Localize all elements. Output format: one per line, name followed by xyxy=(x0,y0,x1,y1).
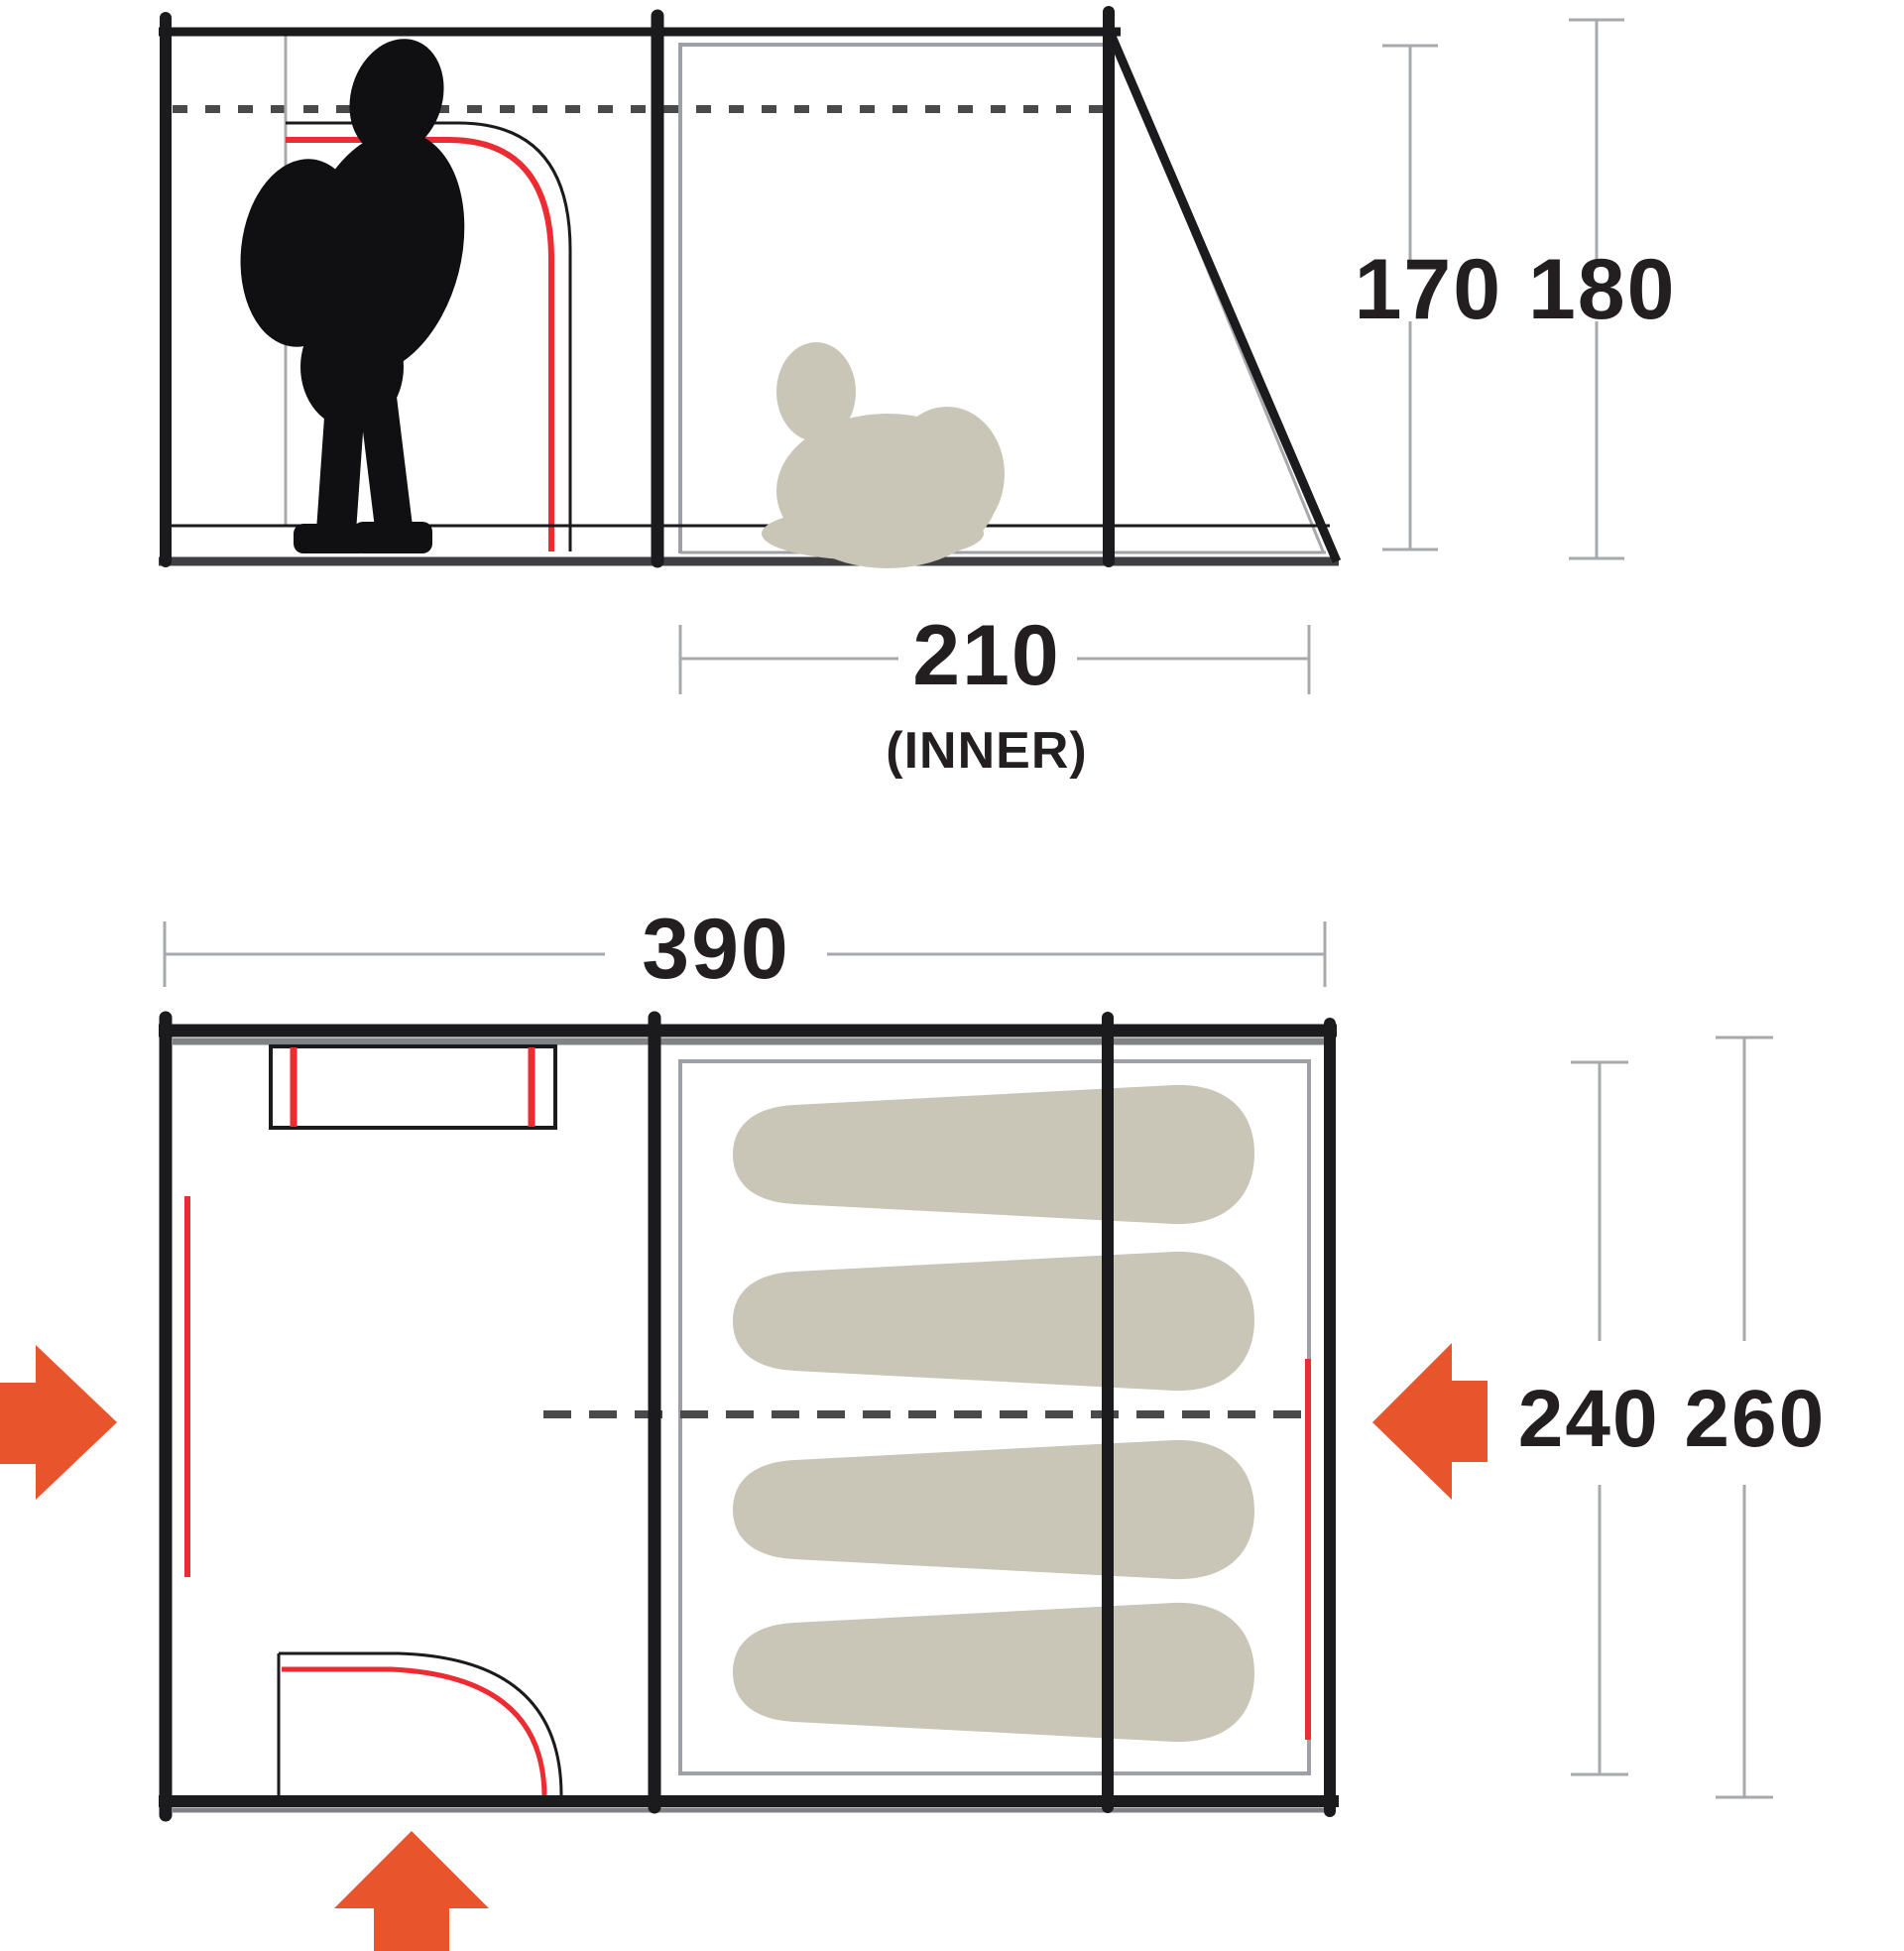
plan-window-box xyxy=(271,1046,555,1128)
plan-front-door-arc-red-zip xyxy=(282,1669,544,1797)
arrow-up-icon xyxy=(334,1831,489,1951)
height-labels: 170 180 xyxy=(1355,247,1677,332)
side-view-rear-slope-pole xyxy=(1111,34,1337,561)
sleeping-bag-shape xyxy=(733,1252,1254,1391)
tent-dimensions-diagram: 210 (INNER) 170 180 390 240 260 xyxy=(0,0,1904,1951)
arrow-right-icon xyxy=(0,1345,117,1500)
depth-labels: 240 260 xyxy=(1518,1379,1826,1460)
sleeping-bags-group xyxy=(733,1085,1254,1742)
inner-width-note-label: (INNER) xyxy=(886,725,1087,777)
sitting-person-silhouette xyxy=(762,342,1005,568)
sleeping-bag-shape xyxy=(733,1085,1254,1224)
arrow-left-icon xyxy=(1372,1343,1487,1500)
sleeping-bag-shape xyxy=(733,1440,1254,1579)
plan-front-door-arc-outline xyxy=(279,1653,561,1795)
outer-width-label: 390 xyxy=(642,907,790,992)
inner-width-label: 210 xyxy=(912,613,1061,698)
sleeping-bag-shape xyxy=(733,1603,1254,1742)
standing-person-silhouette xyxy=(231,27,488,553)
